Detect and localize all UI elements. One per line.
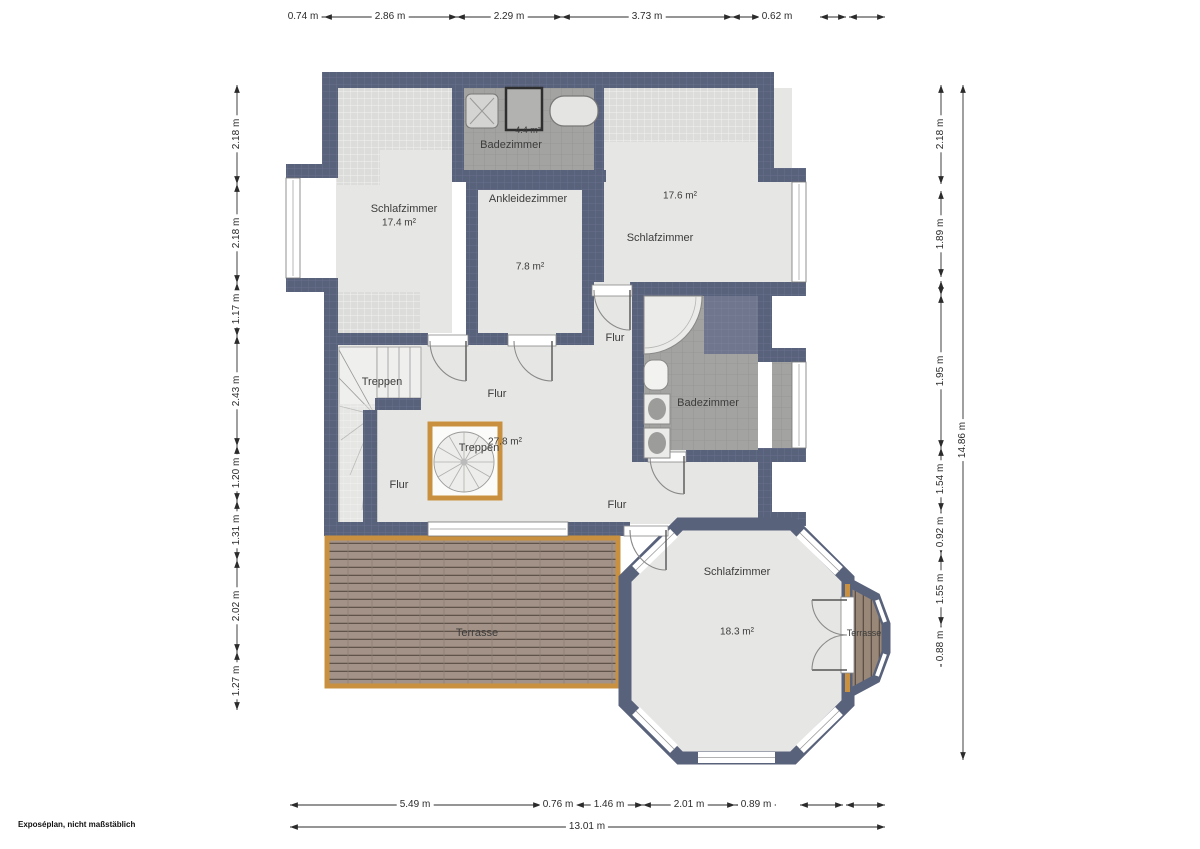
dim-label-right-5: 1.55 m <box>935 571 947 608</box>
room-label-flur-3: Flur <box>390 479 409 491</box>
dim-label-right-2: 1.95 m <box>935 353 947 390</box>
room-label-terrasse: Terrasse <box>456 627 498 639</box>
dim-label-left-2: 1.17 m <box>231 291 243 328</box>
dim-label-top-1: 2.86 m <box>372 11 409 23</box>
room-label-schlafzimmer-ne: Schlafzimmer <box>627 232 694 244</box>
room-area-flur: 27.8 m² <box>488 437 522 448</box>
dim-label-right-1: 1.89 m <box>935 216 947 253</box>
staircase-spiral <box>430 424 500 498</box>
room-area-ankleidezimmer: 7.8 m² <box>516 262 544 273</box>
dim-label-top-2: 2.29 m <box>491 11 528 23</box>
room-label-flur-4: Flur <box>608 499 627 511</box>
dim-label-bottom-1: 0.76 m <box>540 799 577 811</box>
dim-label-left-4: 1.20 m <box>231 455 243 492</box>
dim-label-left-1: 2.18 m <box>231 215 243 252</box>
room-label-ankleidezimmer: Ankleidezimmer <box>489 193 567 205</box>
room-label-schlafzimmer-sued: Schlafzimmer <box>704 566 771 578</box>
room-label-badezimmer-ost: Badezimmer <box>677 397 739 409</box>
room-label-flur-1: Flur <box>488 388 507 400</box>
dim-label-bottom-0: 5.49 m <box>397 799 434 811</box>
room-label-terrasse-ost: Terrasse <box>847 628 882 638</box>
dim-label-left-3: 2.43 m <box>231 373 243 410</box>
octagon-bedroom <box>625 524 848 758</box>
room-label-badezimmer-top: Badezimmer <box>480 139 542 151</box>
dim-label-right-total: 14.86 m <box>957 419 969 461</box>
dim-label-right-3: 1.54 m <box>935 461 947 498</box>
dim-label-left-6: 2.02 m <box>231 588 243 625</box>
dim-label-top-3: 3.73 m <box>629 11 666 23</box>
room-area-schlafzimmer-ne: 17.6 m² <box>663 191 697 202</box>
dim-label-left-5: 1.31 m <box>231 512 243 549</box>
dim-label-top-4: 0.62 m <box>759 11 796 23</box>
dim-label-bottom-3: 2.01 m <box>671 799 708 811</box>
terrace-deck <box>327 538 618 686</box>
floor-plan-drawing <box>0 0 1200 849</box>
dim-label-top-0: 0.74 m <box>285 11 322 23</box>
dim-label-bottom-2: 1.46 m <box>591 799 628 811</box>
dim-label-right-0: 2.18 m <box>935 116 947 153</box>
room-area-schlafzimmer-sued: 18.3 m² <box>720 627 754 638</box>
dim-label-right-6: 0.88 m <box>935 628 947 665</box>
dim-label-bottom-4: 0.89 m <box>738 799 775 811</box>
room-label-flur-2: Flur <box>606 332 625 344</box>
room-label-treppen-1: Treppen <box>362 376 403 388</box>
floor-plan-page: 0.74 m 2.86 m 2.29 m 3.73 m 0.62 m 5.49 … <box>0 0 1200 849</box>
dim-label-bottom-total: 13.01 m <box>566 821 608 833</box>
room-area-badezimmer-top: 4.4 m² <box>515 125 541 135</box>
footer-note: Exposéplan, nicht maßstäblich <box>18 820 135 829</box>
dim-label-left-0: 2.18 m <box>231 116 243 153</box>
room-area-schlafzimmer-nw: 17.4 m² <box>382 218 416 229</box>
room-label-schlafzimmer-nw: Schlafzimmer <box>371 203 438 215</box>
dim-label-left-7: 1.27 m <box>231 663 243 700</box>
dim-label-right-4: 0.92 m <box>935 514 947 551</box>
